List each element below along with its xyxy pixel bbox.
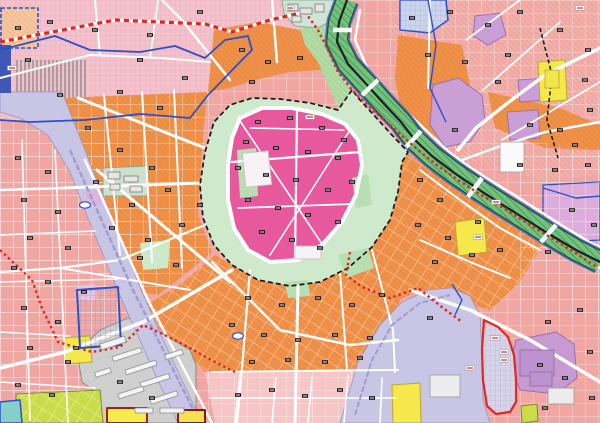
zone-label-text-48: [546, 252, 550, 253]
zone-label-text-40: [558, 130, 562, 131]
zone-label-text-4: [26, 60, 30, 61]
zone-label-text-93: [22, 200, 26, 201]
blue-route-badge-0: [233, 333, 244, 339]
zone-label-text-96: [66, 248, 70, 249]
zone-label-text-15: [130, 205, 134, 206]
building-18: [242, 151, 271, 188]
zone-label-text-71: [276, 208, 280, 209]
zone-label-text-63: [306, 152, 310, 153]
zone-label-text-91: [16, 158, 20, 159]
zone-label-text-106: [236, 395, 240, 396]
zone-label-text-35: [583, 80, 587, 81]
water-teal-bl: [0, 400, 22, 423]
zoning-map-canvas[interactable]: [0, 0, 600, 423]
zone-label-text-10: [16, 28, 20, 29]
zone-label-text-69: [350, 182, 354, 183]
zone-label-text-77: [246, 298, 250, 299]
zone-label-text-66: [264, 175, 268, 176]
op-label-text-6: [501, 359, 507, 360]
zone-label-text-38: [496, 82, 500, 83]
building-20: [500, 142, 524, 172]
zone-label-text-6: [118, 92, 122, 93]
op-label-text-3: [467, 367, 473, 368]
building-21: [430, 375, 460, 397]
op-label-text-5: [501, 351, 507, 352]
zone-label-text-99: [82, 292, 86, 293]
zone-label-text-47: [592, 225, 596, 226]
op-label-text-0: [9, 67, 15, 68]
building-24: [530, 372, 552, 386]
zone-label-text-109: [338, 390, 342, 391]
zone-label-text-107: [270, 390, 274, 391]
zone-label-text-114: [428, 318, 432, 319]
zone-label-text-74: [260, 232, 264, 233]
op-label-text-8: [493, 201, 499, 202]
zone-label-text-105: [50, 395, 54, 396]
zone-label-text-33: [426, 55, 430, 56]
zone-label-text-24: [266, 62, 270, 63]
zone-label-text-43: [518, 165, 522, 166]
zone-label-text-55: [498, 250, 502, 251]
zone-label-text-113: [74, 348, 78, 349]
zone-label-text-37: [453, 130, 457, 131]
building-14: [108, 172, 120, 179]
zone-label-text-3: [198, 12, 202, 13]
zone-label-text-28: [448, 12, 452, 13]
block-yellow-bc: [392, 383, 421, 423]
zone-label-text-49: [418, 180, 422, 181]
op-label-text-9: [492, 337, 498, 338]
op-label-text-4: [577, 7, 583, 8]
map-viewport: [0, 0, 600, 423]
zone-label-text-26: [250, 82, 254, 83]
zone-label-text-58: [288, 118, 292, 119]
building-8: [160, 408, 184, 413]
zone-label-text-34: [463, 62, 467, 63]
op-label-text-1: [287, 7, 293, 8]
zone-label-text-103: [66, 362, 70, 363]
zone-label-text-119: [563, 378, 567, 379]
op-label-text-7: [307, 116, 313, 117]
zone-label-text-52: [446, 238, 450, 239]
zone-label-text-20: [198, 205, 202, 206]
boundary-blue-sw-block: [77, 287, 121, 348]
zone-label-text-79: [316, 298, 320, 299]
building-11: [300, 8, 312, 14]
building-25: [545, 70, 559, 88]
zone-label-text-23: [240, 50, 244, 51]
zone-label-text-60: [342, 140, 346, 141]
zone-label-text-76: [318, 248, 322, 249]
zone-label-text-59: [320, 128, 324, 129]
zone-label-text-53: [476, 222, 480, 223]
zone-label-text-19: [180, 225, 184, 226]
zone-label-text-61: [244, 142, 248, 143]
zone-label-text-108: [303, 396, 307, 397]
zone-label-text-64: [336, 158, 340, 159]
zone-label-text-30: [518, 12, 522, 13]
zone-label-text-11: [86, 128, 90, 129]
zone-label-text-56: [433, 262, 437, 263]
zone-label-text-7: [158, 108, 162, 109]
zone-label-text-65: [236, 168, 240, 169]
zone-label-text-111: [118, 382, 122, 383]
zone-label-text-42: [573, 145, 577, 146]
zone-label-text-45: [586, 165, 590, 166]
zone-label-text-62: [274, 148, 278, 149]
zone-label-text-1: [93, 30, 97, 31]
zone-label-text-14: [94, 182, 98, 183]
zone-label-text-44: [553, 170, 557, 171]
zone-label-text-102: [28, 348, 32, 349]
zone-label-text-117: [538, 365, 542, 366]
building-17: [130, 186, 142, 192]
zone-label-text-104: [16, 385, 20, 386]
zone-label-text-36: [506, 55, 510, 56]
zone-label-text-101: [56, 322, 60, 323]
zone-label-text-2: [148, 35, 152, 36]
zone-label-text-12: [118, 150, 122, 151]
zone-label-text-84: [296, 340, 300, 341]
zone-label-text-25: [298, 58, 302, 59]
zone-label-text-115: [546, 322, 550, 323]
zone-label-text-120: [590, 398, 594, 399]
zone-label-text-9: [138, 60, 142, 61]
zone-label-text-22: [174, 265, 178, 266]
zone-label-text-86: [368, 338, 372, 339]
zone-label-text-98: [46, 282, 50, 283]
zone-label-text-95: [28, 238, 32, 239]
zone-label-text-92: [46, 172, 50, 173]
zone-label-text-39: [528, 125, 532, 126]
zone-label-text-51: [416, 225, 420, 226]
zone-label-text-116: [578, 310, 582, 311]
zone-label-text-68: [326, 190, 330, 191]
zone-label-text-85: [333, 335, 337, 336]
zone-label-text-80: [350, 305, 354, 306]
zone-label-text-73: [336, 222, 340, 223]
zone-label-text-54: [470, 255, 474, 256]
zone-label-text-82: [230, 325, 234, 326]
zone-label-text-89: [323, 362, 327, 363]
zone-label-text-72: [306, 215, 310, 216]
zone-label-text-100: [22, 308, 26, 309]
zone-label-text-75: [290, 240, 294, 241]
zone-label-text-18: [146, 240, 150, 241]
zone-label-text-8: [183, 78, 187, 79]
zone-label-text-87: [250, 362, 254, 363]
zone-label-text-50: [438, 200, 442, 201]
zone-label-text-70: [246, 200, 250, 201]
building-22: [548, 388, 574, 404]
zone-label-text-32: [586, 50, 590, 51]
zone-label-text-81: [380, 295, 384, 296]
zone-label-text-83: [262, 335, 266, 336]
blue-route-badge-1: [80, 202, 91, 208]
zone-label-text-110: [370, 398, 374, 399]
building-16: [110, 184, 120, 190]
zone-label-text-17: [110, 228, 114, 229]
zone-label-text-29: [486, 25, 490, 26]
zone-label-text-5: [58, 95, 62, 96]
zone-label-text-94: [56, 212, 60, 213]
building-15: [124, 176, 138, 182]
building-13: [292, 16, 301, 22]
zone-label-text-21: [138, 258, 142, 259]
zone-label-text-0: [48, 22, 52, 23]
building-12: [315, 4, 324, 12]
building-9: [135, 408, 153, 413]
zone-label-text-97: [12, 268, 16, 269]
zone-label-text-41: [588, 110, 592, 111]
zone-label-text-112: [150, 398, 154, 399]
zone-label-text-90: [358, 358, 362, 359]
op-label-text-2: [475, 236, 481, 237]
zone-label-text-13: [150, 168, 154, 169]
zone-label-text-16: [166, 190, 170, 191]
zone-label-text-31: [558, 30, 562, 31]
zone-label-text-118: [588, 352, 592, 353]
block-chartreuse-br: [521, 404, 538, 423]
zone-label-text-67: [294, 180, 298, 181]
zone-label-text-57: [256, 122, 260, 123]
zone-label-text-121: [543, 408, 547, 409]
zone-label-text-46: [570, 210, 574, 211]
zone-label-text-88: [286, 360, 290, 361]
zone-label-text-27: [410, 18, 414, 19]
zone-label-text-78: [280, 305, 284, 306]
